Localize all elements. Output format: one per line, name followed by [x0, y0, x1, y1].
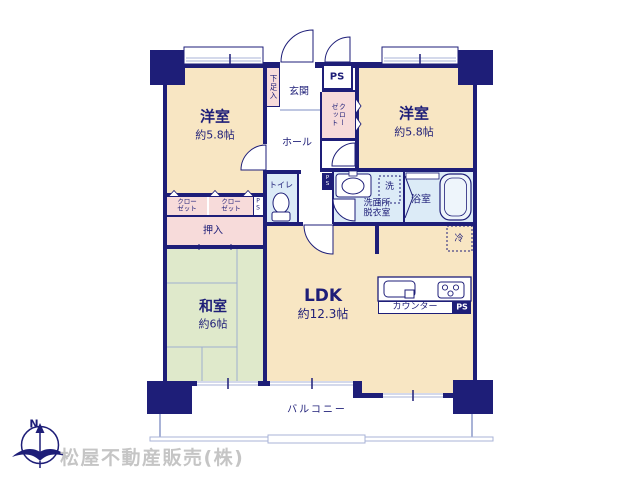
closet-left-1-label: クロー ゼット	[177, 199, 197, 214]
wall-closet-right-top	[322, 90, 355, 92]
refrigerator-label: 冷	[454, 234, 463, 244]
wall-bath-left	[403, 172, 405, 224]
wall-closet-right-left	[320, 92, 322, 138]
wall-v-hall-upper	[263, 66, 267, 144]
washroom-label: 洗面所 脱衣室	[363, 199, 390, 220]
ldk-name: LDK	[304, 287, 342, 307]
wall-washroom-top	[320, 168, 357, 172]
counter-label: カウンター	[392, 302, 437, 312]
bedroom-left-size: 約5.8帖	[195, 130, 235, 143]
pillar-top-right	[458, 50, 493, 85]
entrance-label: 玄関	[289, 86, 309, 98]
bedroom-right-size: 約5.8帖	[394, 127, 434, 140]
ldk-size: 約12.3帖	[298, 308, 349, 322]
wall-bedroom-left-bottom	[167, 193, 267, 197]
balcony-label: バルコニー	[287, 404, 347, 416]
pillar-bottom-right	[453, 380, 493, 414]
entrance-door-gap	[280, 62, 315, 68]
ps-washroom-label: P S	[326, 175, 330, 187]
closet-right-label: クローゼット	[331, 103, 346, 127]
wall-toilet-right	[297, 170, 299, 222]
bedroom-right-name: 洋室	[399, 105, 429, 122]
wall-bottom-step	[353, 381, 362, 398]
compass-north-label: N	[29, 419, 38, 432]
floorplan-sheet: 洋室 約5.8帖 洋室 約5.8帖 和室 約6帖 LDK 約12.3帖 ホール …	[0, 0, 640, 480]
wall-outer-left	[163, 85, 167, 381]
company-name: 松屋不動産販売(株)	[60, 443, 244, 470]
pillar-bottom-left	[147, 381, 192, 414]
hall-label: ホール	[282, 137, 312, 149]
wall-kitchen-stub	[375, 226, 379, 254]
japanese-room-size: 約6帖	[199, 319, 228, 332]
wall-toilet-top	[263, 170, 301, 174]
ps-closet-label: P S	[256, 198, 260, 211]
bathroom-label: 浴室	[411, 194, 431, 206]
toilet-label: トイレ	[269, 180, 293, 189]
balcony-railing	[150, 414, 493, 443]
wall-closet-right-bottom	[320, 138, 357, 141]
wall-v-hall-lower	[263, 170, 267, 381]
wall-oshiire-bottom	[167, 245, 267, 249]
wall-hall-stub	[320, 141, 322, 172]
wall-closet-row-bottom	[167, 215, 265, 217]
entrance-door-swing	[281, 30, 350, 62]
closet-left-2-label: クロー ゼット	[221, 199, 241, 214]
bedroom-left-name: 洋室	[200, 108, 230, 125]
washer-label: 洗	[385, 182, 394, 192]
wall-bedroom-right-bottom	[355, 168, 477, 172]
wall-ldk-top-b	[333, 222, 477, 226]
wall-entrance-stub	[315, 62, 322, 68]
wall-bottom-b	[258, 381, 270, 386]
ps-entrance-label: PS	[330, 71, 345, 83]
wall-bottom-c	[362, 393, 383, 398]
wall-outer-right	[473, 85, 477, 381]
wall-bedroom-right-left	[355, 66, 359, 168]
wall-ldk-top-a	[263, 222, 303, 226]
oshiire-label: 押入	[203, 225, 223, 237]
pillar-top-left	[150, 50, 185, 85]
ps-kitchen-label: PS	[456, 302, 468, 311]
shoe-cabinet-label: 下足入	[269, 74, 277, 100]
japanese-room-name: 和室	[199, 299, 227, 315]
